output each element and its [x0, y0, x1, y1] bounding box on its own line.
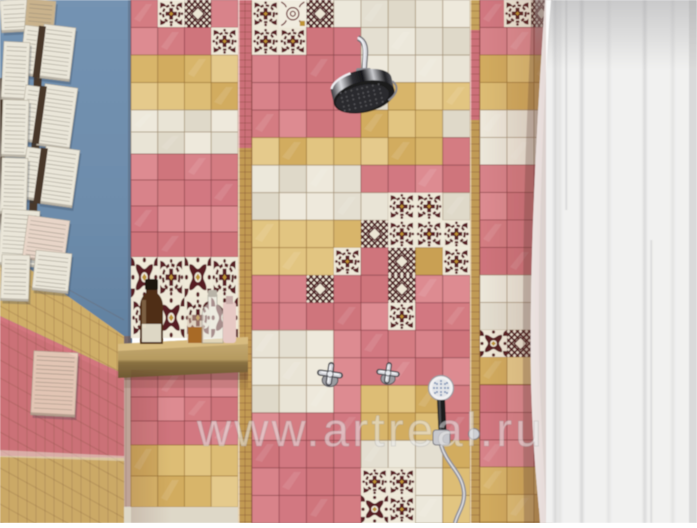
svg-text:www.artreal.ru: www.artreal.ru	[196, 403, 545, 456]
